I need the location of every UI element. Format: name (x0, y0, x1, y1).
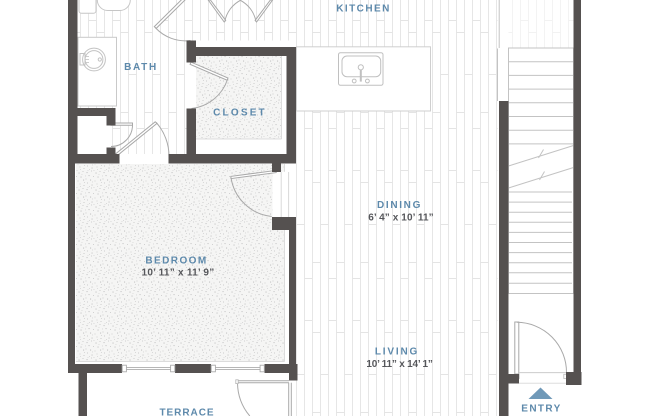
svg-text:BATH: BATH (124, 62, 158, 73)
svg-text:10’ 11” x 11’ 9”: 10’ 11” x 11’ 9” (142, 268, 215, 279)
svg-text:LIVING: LIVING (375, 347, 419, 358)
svg-text:CLOSET: CLOSET (213, 108, 267, 119)
svg-text:6’ 4” x 10’ 11”: 6’ 4” x 10’ 11” (368, 213, 433, 224)
svg-text:TERRACE: TERRACE (160, 408, 215, 416)
svg-text:BEDROOM: BEDROOM (145, 256, 207, 267)
svg-text:DINING: DINING (377, 200, 422, 211)
svg-text:ENTRY: ENTRY (521, 404, 561, 415)
svg-text:KITCHEN: KITCHEN (336, 4, 391, 15)
svg-text:10’ 11” x 14’ 1”: 10’ 11” x 14’ 1” (366, 359, 433, 370)
